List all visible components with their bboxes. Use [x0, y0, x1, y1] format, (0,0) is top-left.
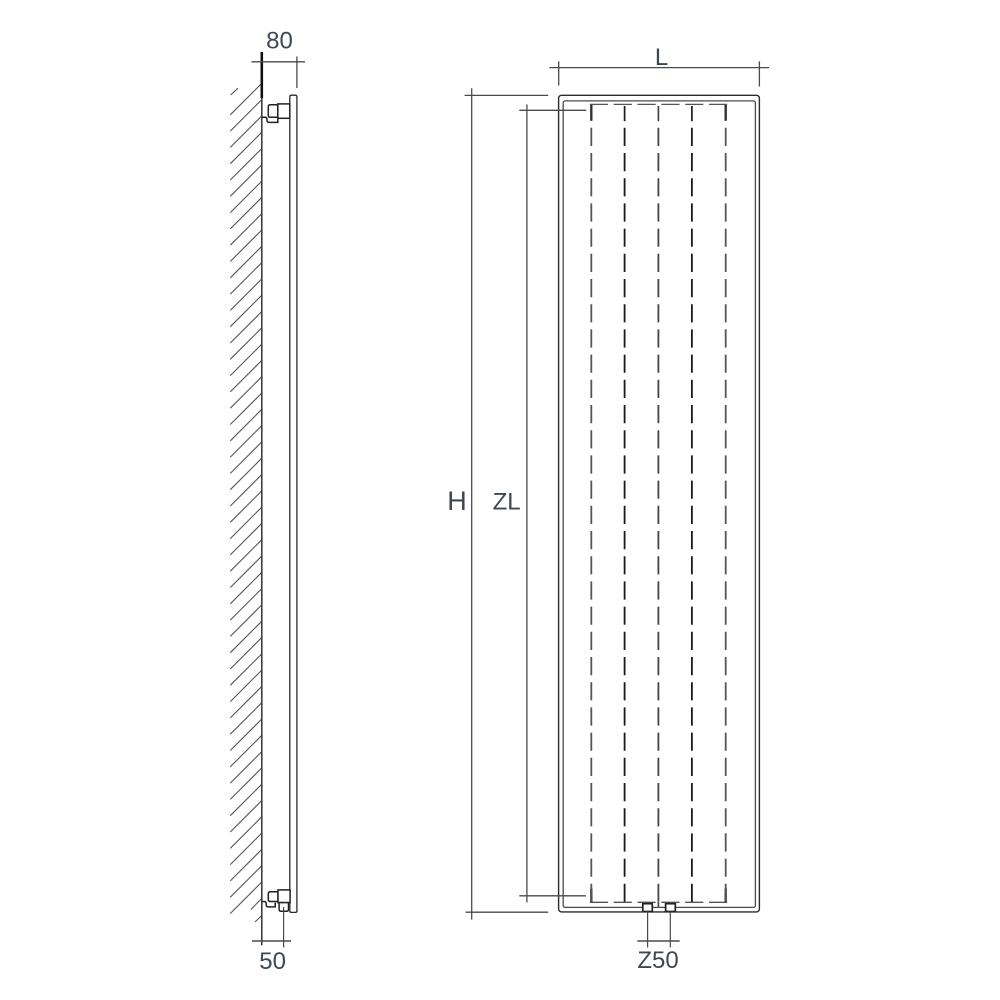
- svg-text:50: 50: [259, 948, 286, 975]
- svg-text:L: L: [655, 44, 668, 71]
- svg-text:ZL: ZL: [493, 488, 521, 515]
- svg-text:H: H: [447, 486, 467, 516]
- svg-text:Z50: Z50: [637, 947, 678, 974]
- svg-text:80: 80: [266, 28, 293, 55]
